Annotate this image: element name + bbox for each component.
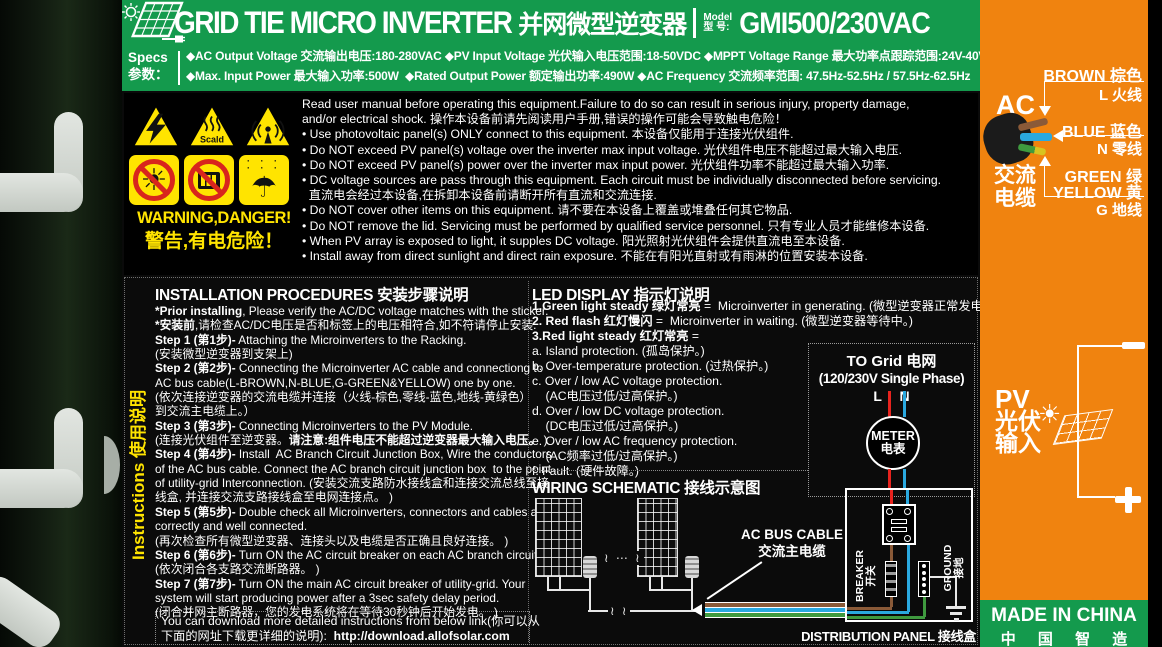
product-title: GRID TIE MICRO INVERTER 并网微型逆变器 Model 型 …	[174, 0, 930, 46]
text-line: Step 3 (第3步)- Connecting Microinverters …	[155, 419, 533, 433]
wire-blue	[907, 545, 910, 612]
rf-radiation-icon	[241, 101, 295, 150]
text-line: • When PV array is exposed to light, it …	[302, 234, 978, 249]
plus-terminal	[1125, 487, 1132, 513]
text-line: 直流电会经过本设备,在拆卸本设备前请断开所有直流和交流连接.	[302, 188, 978, 203]
wire-green	[847, 616, 925, 619]
installation-steps: *Prior installing, Please verify the AC/…	[155, 304, 533, 620]
label-header: GRID TIE MICRO INVERTER 并网微型逆变器 Model 型 …	[122, 0, 980, 91]
panel-lead	[649, 577, 651, 589]
led-section-divider	[532, 470, 808, 471]
to-grid-line2: (120/230V Single Phase)	[809, 371, 974, 386]
line-l-red	[888, 391, 891, 417]
panel-lead	[547, 589, 589, 591]
text-line: (安装微型逆变器到支架上)	[155, 347, 533, 361]
text-line: Read user manual before operating this e…	[302, 97, 978, 112]
microinverter-icon	[583, 556, 597, 578]
bracket-line	[1044, 166, 1045, 196]
no-cover-icon	[184, 155, 234, 205]
product-title-zh: 并网微型逆变器	[518, 5, 686, 41]
text-line: 到交流主电缆上。）	[155, 404, 533, 418]
specs-divider	[178, 51, 180, 85]
ground-terminal-strip	[918, 561, 930, 597]
text-line: Step 1 (第1步)- Attaching the Microinverte…	[155, 333, 533, 347]
text-line: • Install away from direct sunlight and …	[302, 249, 978, 264]
fuse	[885, 561, 897, 597]
text-line: Step 7 (第7步)- Turn ON the main AC circui…	[155, 577, 533, 591]
wire-green	[923, 597, 926, 617]
instructions-vertical-label: Instructions 使用说明	[124, 335, 149, 615]
text-line: of utility-grid Interconnection. (安装交流支路…	[155, 476, 533, 490]
wire-blue	[1020, 133, 1052, 141]
brown-wire-label: BROWN 棕色	[1043, 62, 1142, 86]
blue-arrow	[1053, 130, 1063, 142]
text-line: (依次连接逆变器的交流电缆并连接（火线-棕色,零线-蓝色,地线-黄绿色）	[155, 390, 533, 404]
blue-wire-label-zh: N 零线	[1097, 138, 1142, 159]
svg-text:Scald: Scald	[200, 135, 224, 145]
distribution-panel-box: BREAKER 开关 GROUND 接地	[845, 488, 973, 622]
green-arrow	[1039, 156, 1051, 166]
ground-label: GROUND 接地	[943, 542, 965, 594]
text-line: ◆Max. Input Power 最大输入功率:500W ◆Rated Out…	[186, 67, 980, 87]
installation-title: INSTALLATION PROCEDURES 安装步骤说明	[155, 283, 468, 305]
line-l-red	[888, 469, 891, 490]
warning-section: Scald ☀ · · ·· · · ☂ WARNING,DANGER! 警告,…	[124, 93, 978, 275]
device-edge-highlight	[104, 436, 120, 494]
ac-cable-label-zh: 交流 电缆	[994, 164, 1036, 210]
text-line: and/or electrical shock. 操作本设备前请先阅读用户手册,…	[302, 112, 978, 127]
side-panel: AC 交流 电缆 BROWN 棕色 L 火线 BLUE 蓝色 N 零线 GREE…	[980, 0, 1148, 647]
text-line: system will start producing power after …	[155, 591, 533, 605]
prohibition-overlay	[188, 159, 230, 201]
title-divider	[693, 8, 696, 38]
bus-drop	[589, 578, 591, 612]
text-line: • Do NOT exceed PV panel(s) power over t…	[302, 158, 978, 173]
distribution-panel-label: DISTRIBUTION PANEL 接线盒	[794, 626, 976, 645]
product-label: GRID TIE MICRO INVERTER 并网微型逆变器 Model 型 …	[122, 0, 980, 647]
breaker-label: BREAKER 开关	[855, 548, 877, 604]
model-label: Model 型 号:	[703, 13, 732, 33]
line-n-blue	[903, 391, 906, 417]
text-line: • DC voltage sources are pass through th…	[302, 173, 978, 188]
text-line: • Do NOT exceed PV panel(s) voltage over…	[302, 143, 978, 158]
solar-panel-icon	[1053, 409, 1114, 445]
text-line: Step 4 (第4步)- Install AC Branch Circuit …	[155, 447, 533, 461]
minus-terminal	[1122, 342, 1145, 349]
text-line: (再次检查所有微型逆变器、连接头以及电缆是否正确且良好连接。 )	[155, 534, 533, 548]
brown-arrow	[1039, 106, 1051, 116]
text-line: 1.Green light steady 绿灯常亮 = Microinverte…	[532, 299, 980, 314]
brown-wire-label-zh: L 火线	[1099, 84, 1142, 105]
made-in-china-bar: MADE IN CHINA 中 国 智 造	[980, 600, 1148, 647]
text-line: 线盒, 并连接交流支路接线盒至电网连接点。 )	[155, 490, 533, 504]
scald-icon: Scald	[185, 101, 239, 150]
made-in-china-zh: 中 国 智 造	[980, 628, 1148, 647]
text-line: Step 5 (第5步)- Double check all Microinve…	[155, 505, 533, 519]
wiring-schematic-title: WIRING SCHEMATIC 接线示意图	[532, 476, 760, 498]
to-grid-line1: TO Grid 电网	[809, 350, 974, 371]
panel-lead	[661, 577, 663, 589]
text-line: (连接光伏组件至逆变器。请注意:组件电压不能超过逆变器最大输入电压。 )	[155, 433, 533, 447]
meter: METER 电表	[866, 416, 920, 470]
panel-lead	[649, 589, 693, 591]
text-line: 下面的网址下载更详细的说明): http://download.allofsol…	[161, 629, 524, 644]
line-n-blue	[903, 469, 906, 490]
bracket-line	[1044, 81, 1144, 82]
pv-bracket	[1077, 496, 1115, 498]
text-line: of the AC bus cable. Connect the AC bran…	[155, 462, 533, 476]
wire-brown	[890, 597, 893, 607]
made-in-china-en: MADE IN CHINA	[980, 605, 1148, 627]
continuation-marks: ≀ ⋯ ≀	[602, 551, 644, 565]
model-value: GMI500/230VAC	[739, 6, 930, 40]
text-line: (依次闭合各支路交流断路器。 )	[155, 562, 533, 576]
ac-bus-cable-label: AC BUS CABLE 交流主电缆	[732, 527, 852, 560]
text-line: • Do NOT cover other items on this equip…	[302, 203, 978, 218]
text-line: 3.Red light steady 红灯常亮 =	[532, 329, 980, 344]
text-line: correctly and well connected.	[155, 519, 533, 533]
pv-input-label: PV 光伏 输入	[995, 388, 1041, 454]
to-grid-ln: L N	[809, 388, 974, 404]
green-wire-label-zh: G 地线	[1096, 199, 1142, 220]
mounting-hook-slot	[0, 571, 66, 647]
warning-heading-zh: 警告,有电危险！	[126, 226, 302, 253]
text-line: • Use photovoltaic panel(s) ONLY connect…	[302, 127, 978, 142]
bracket-line	[1044, 196, 1144, 197]
panel-lead	[559, 577, 561, 589]
text-line: Step 2 (第2步)- Connecting the Microinvert…	[155, 361, 533, 375]
no-direct-sunlight-icon: ☀	[129, 155, 179, 205]
inverter-label-photo: { "colors":{"green":"#149a4d","orange":"…	[0, 0, 1162, 647]
wire-brown	[847, 607, 892, 610]
continuation-marks: ≀ ≀	[608, 604, 630, 618]
mounting-hook-slot	[0, 469, 83, 508]
inverter-device-body	[0, 0, 122, 647]
ac-bus-cable	[705, 602, 845, 618]
ac-bus-line	[588, 610, 696, 612]
text-line: • Do NOT remove the lid. Servicing must …	[302, 219, 978, 234]
cable-arrowhead	[692, 604, 702, 616]
breaker-unit	[882, 504, 916, 545]
sun-icon: ☀	[1038, 400, 1061, 430]
specs-label: Specs 参数：	[128, 49, 169, 83]
warning-text: Read user manual before operating this e…	[302, 97, 978, 264]
pv-module-icon	[535, 498, 582, 577]
bracket-line	[1044, 81, 1045, 107]
text-line: Step 6 (第6步)- Turn ON the AC circuit bre…	[155, 548, 533, 562]
wire-blue	[847, 611, 909, 614]
microinverter-icon	[685, 556, 699, 578]
panel-lead	[547, 577, 549, 589]
product-title-en: GRID TIE MICRO INVERTER	[174, 5, 511, 41]
high-voltage-icon	[129, 101, 183, 150]
text-line: *安装前,请检查AC/DC电压是否和标签上的电压相符合,如不符请停止安装.	[155, 318, 533, 332]
text-line: 2. Red flash 红灯慢闪 = Microinverter in wai…	[532, 314, 980, 329]
prohibition-overlay	[133, 159, 175, 201]
pv-bracket	[1077, 345, 1122, 347]
download-note: You can download more detailed instructi…	[155, 611, 530, 645]
text-line: AC bus cable(L-BROWN,N-BLUE,G-GREEN&YELL…	[155, 376, 533, 390]
mounting-hook-slot	[0, 173, 83, 212]
pv-module-icon	[637, 498, 678, 577]
keep-dry-umbrella-icon: · · ·· · · ☂	[239, 155, 289, 205]
text-line: You can download more detailed instructi…	[161, 614, 524, 629]
specs-lines: ◆AC Output Voltage 交流输出电压:180-280VAC ◆PV…	[186, 47, 980, 86]
text-line: ◆AC Output Voltage 交流输出电压:180-280VAC ◆PV…	[186, 47, 980, 67]
text-line: *Prior installing, Please verify the AC/…	[155, 304, 533, 318]
wire-brown	[890, 545, 893, 561]
bracket-line	[1064, 135, 1144, 136]
